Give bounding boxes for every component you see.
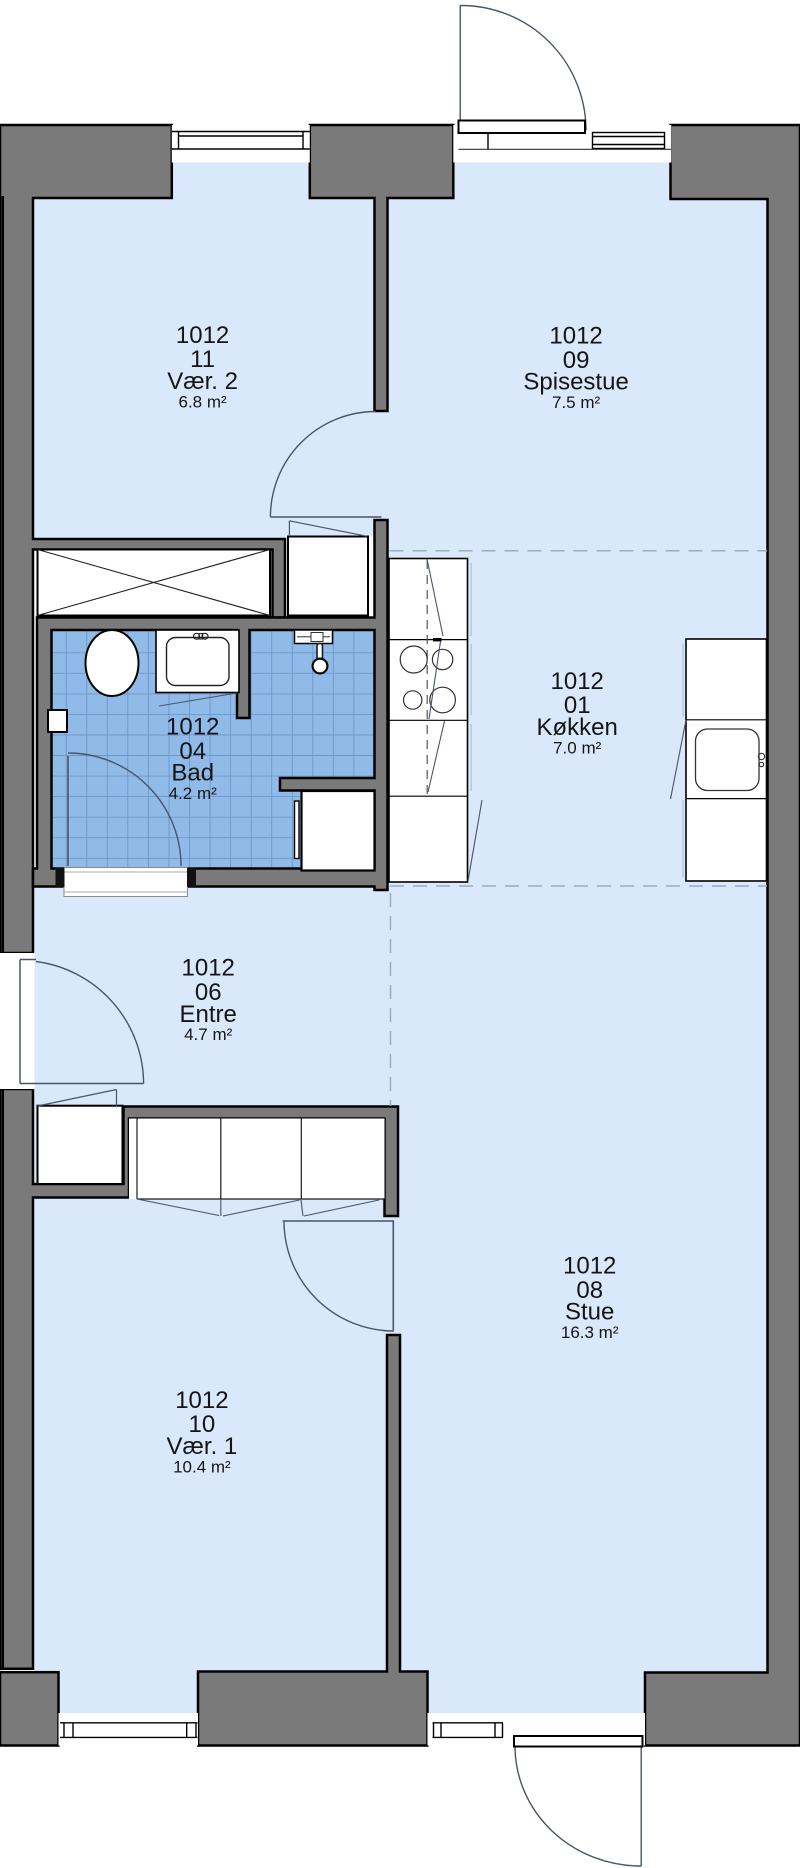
svg-text:10.4 m²: 10.4 m² [173,1457,231,1476]
svg-text:Bad: Bad [171,760,214,787]
svg-text:Køkken: Køkken [537,714,618,741]
svg-text:1012: 1012 [182,955,235,982]
svg-text:Vær. 1: Vær. 1 [167,1433,238,1460]
svg-text:6.8 m²: 6.8 m² [179,392,228,411]
svg-text:1012: 1012 [166,713,219,740]
svg-text:1012: 1012 [175,1387,228,1414]
svg-text:1012: 1012 [551,668,604,695]
svg-text:Stue: Stue [565,1299,614,1326]
svg-text:7.5 m²: 7.5 m² [552,393,601,412]
svg-text:7.0 m²: 7.0 m² [553,738,602,757]
svg-text:Entre: Entre [180,1001,237,1028]
svg-text:1012: 1012 [176,322,229,349]
svg-text:1012: 1012 [549,322,602,349]
svg-text:Vær. 2: Vær. 2 [167,368,238,395]
svg-text:1012: 1012 [563,1252,616,1279]
svg-text:16.3 m²: 16.3 m² [561,1323,619,1342]
svg-text:4.7 m²: 4.7 m² [184,1025,233,1044]
svg-text:4.2 m²: 4.2 m² [169,784,218,803]
svg-text:Spisestue: Spisestue [523,369,628,396]
